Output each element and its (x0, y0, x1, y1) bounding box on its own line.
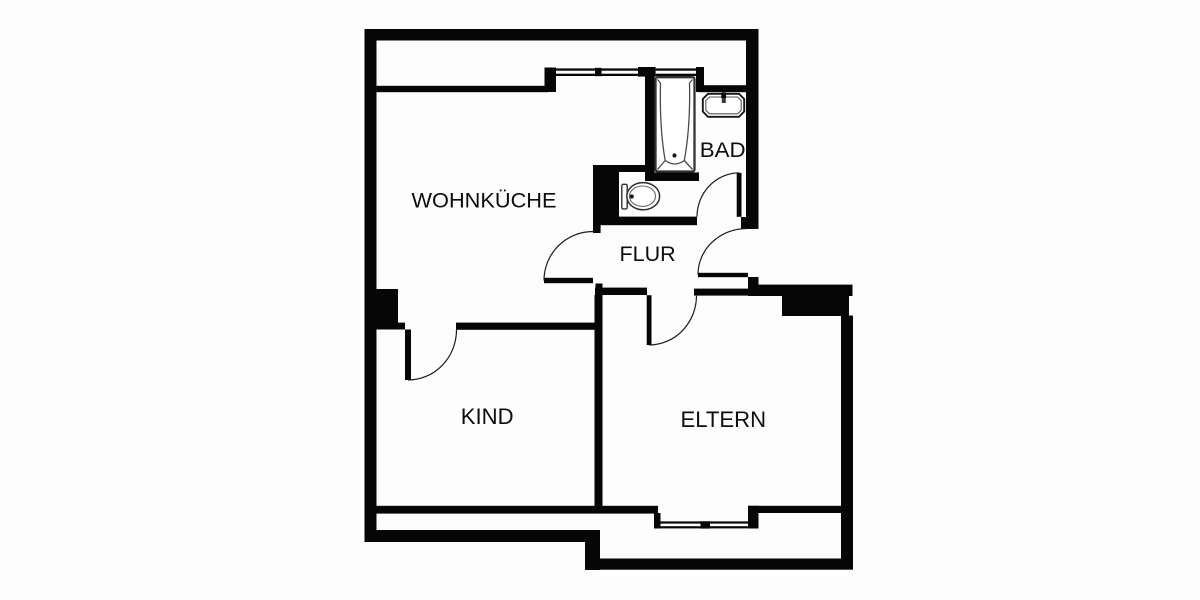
svg-text:ELTERN: ELTERN (681, 407, 767, 432)
svg-text:WOHNKÜCHE: WOHNKÜCHE (412, 189, 557, 213)
svg-text:BAD: BAD (700, 139, 746, 162)
svg-text:KIND: KIND (461, 404, 514, 429)
svg-text:FLUR: FLUR (620, 241, 676, 266)
